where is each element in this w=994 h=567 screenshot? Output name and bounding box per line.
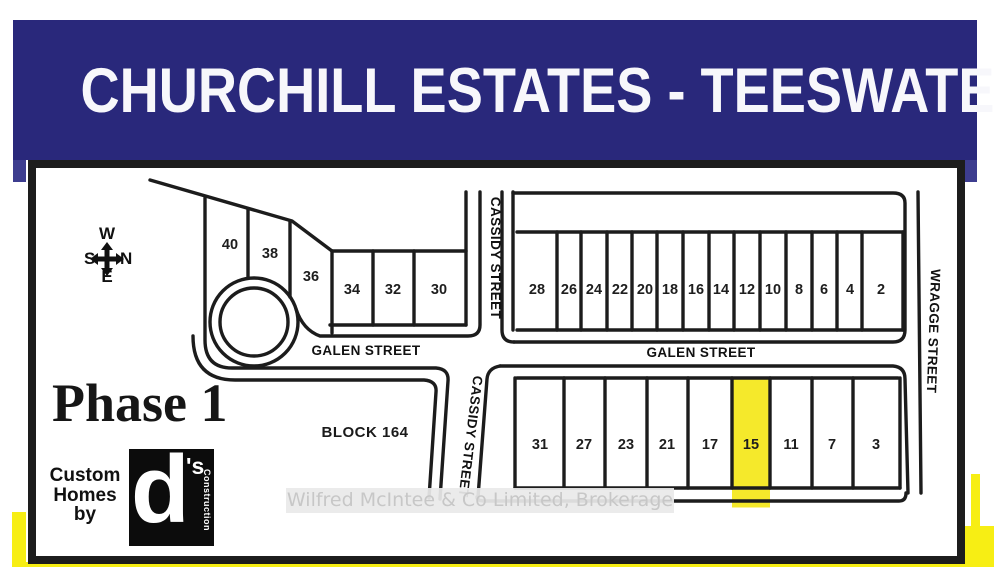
lot-number-6: 6 — [820, 282, 828, 298]
street-line — [150, 180, 332, 251]
lot-number-40: 40 — [222, 237, 238, 253]
lot-number-28: 28 — [529, 282, 545, 298]
lot-number-20: 20 — [637, 282, 653, 298]
lot-number-38: 38 — [262, 246, 278, 262]
yellow-corner-right — [961, 526, 994, 567]
lot-number-4: 4 — [846, 282, 854, 298]
lot-number-16: 16 — [688, 282, 704, 298]
street-label-galen_west: GALEN STREET — [311, 343, 420, 358]
banner-right-notch — [964, 160, 977, 182]
lot-number-21: 21 — [659, 437, 675, 453]
lot-number-17: 17 — [702, 437, 718, 453]
lot-number-3: 3 — [872, 437, 880, 453]
lot-number-32: 32 — [385, 282, 401, 298]
lot-number-23: 23 — [618, 437, 634, 453]
builder-line-1: Custom — [44, 466, 126, 486]
lot-number-18: 18 — [662, 282, 678, 298]
builder-line-3: by — [44, 505, 126, 525]
cul-de-sac-curb — [220, 288, 288, 356]
ds-construction-logo: d 's Construction — [129, 449, 214, 546]
street-line — [296, 192, 480, 336]
compass-rose: W S N E — [58, 224, 156, 300]
lot-number-34: 34 — [344, 282, 360, 298]
builder-credit: Custom Homes by — [44, 466, 126, 525]
cul-de-sac-curb — [210, 278, 298, 366]
lot-number-10: 10 — [765, 282, 781, 298]
logo-construction-text: Construction — [202, 469, 212, 531]
yellow-edge-left — [12, 512, 26, 567]
lot-number-12: 12 — [739, 282, 755, 298]
lot-number-15: 15 — [743, 437, 759, 453]
lot-number-26: 26 — [561, 282, 577, 298]
lot-number-36: 36 — [303, 269, 319, 285]
compass-arrows-icon — [90, 242, 124, 276]
brokerage-watermark: Wilfred McIntee & Co Limited, Brokerage — [286, 488, 674, 513]
lot-number-14: 14 — [713, 282, 729, 298]
lot-number-2: 2 — [877, 282, 885, 298]
lot-number-11: 11 — [783, 437, 798, 453]
lot-number-30: 30 — [431, 282, 447, 298]
flyer-page: CHURCHILL ESTATES - TEESWATER 4038363432… — [0, 0, 994, 567]
street-label-galen_east: GALEN STREET — [646, 345, 755, 360]
street-line — [918, 192, 921, 493]
logo-letter-d: d — [131, 449, 190, 540]
block-label: BLOCK 164 — [300, 424, 430, 441]
compass-west-label: W — [58, 224, 156, 244]
lot-number-24: 24 — [586, 282, 602, 298]
street-line — [500, 366, 908, 493]
lot-number-8: 8 — [795, 282, 803, 298]
lot-number-27: 27 — [576, 437, 592, 453]
page-title: CHURCHILL ESTATES - TEESWATER — [80, 20, 909, 160]
street-label-cassidy_upper: CASSIDY STREET — [488, 197, 503, 320]
street-label-wragge: WRAGGE STREET — [924, 269, 943, 394]
lot-number-7: 7 — [828, 437, 836, 453]
phase-label: Phase 1 — [52, 372, 228, 434]
lot-number-31: 31 — [532, 437, 548, 453]
builder-line-2: Homes — [44, 486, 126, 506]
title-banner: CHURCHILL ESTATES - TEESWATER — [13, 20, 977, 160]
banner-left-notch — [13, 160, 26, 182]
lot-number-22: 22 — [612, 282, 628, 298]
